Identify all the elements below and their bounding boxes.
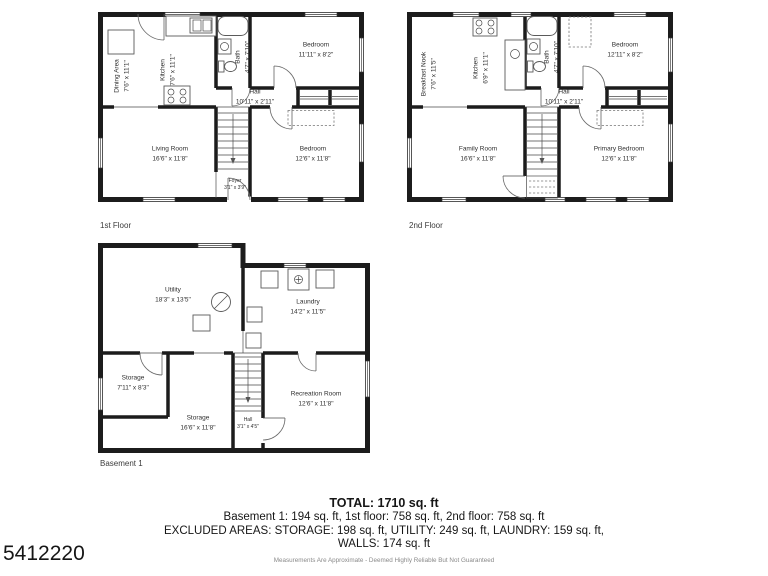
room-label-hall: Hall10'11" x 2'11" (236, 87, 274, 107)
staircase (218, 113, 248, 169)
room-label-hall: Hall10'11" x 2'11" (545, 87, 583, 107)
room-label-bedroom: Bedroom12'11" x 8'2" (607, 40, 642, 60)
dining-table-icon (108, 30, 134, 54)
caption-basement: Basement 1 (100, 459, 143, 468)
washer-icon (261, 271, 278, 288)
toilet-icon (219, 61, 225, 72)
room-label-bath: Bath4'7" x 7'10" (233, 41, 253, 73)
room-label-bath: Bath4'7" x 7'10" (542, 41, 562, 73)
room-label-recreation-room: Recreation Room12'6" x 11'8" (291, 389, 342, 409)
room-label-bedroom-2: Bedroom12'6" x 11'8" (295, 144, 330, 164)
bathtub-icon (218, 17, 248, 36)
utility-fixtures (193, 293, 231, 332)
room-label-dining-area: Dining Area7'6" x 11'1" (112, 59, 132, 93)
caption-2nd-floor: 2nd Floor (409, 221, 443, 230)
room-label-utility: Utility18'3" x 13'5" (155, 285, 191, 305)
equipment-box (246, 333, 261, 348)
equipment-box (247, 307, 262, 322)
room-label-bedroom-1: Bedroom11'11" x 8'2" (299, 40, 334, 60)
staircase (233, 357, 263, 411)
hall-closets (609, 90, 667, 105)
disclaimer-text: Measurements Are Approximate - Deemed Hi… (0, 557, 768, 564)
room-label-kitchen: Kitchen6'9" x 11'1" (471, 52, 491, 84)
kitchen-counter (166, 16, 216, 36)
listing-id-watermark: 5412220 (3, 542, 85, 566)
room-label-breakfast-nook: Breakfast Nook7'6" x 11'5" (419, 52, 439, 96)
walls-area-line: WALLS: 174 sq. ft (0, 538, 768, 552)
room-label-storage-2: Storage16'6" x 11'8" (180, 413, 215, 433)
area-summary: TOTAL: 1710 sq. ft Basement 1: 194 sq. f… (0, 496, 768, 564)
room-label-kitchen: Kitchen7'6" x 11'1" (158, 54, 178, 86)
floor-plan-basement-drawing (98, 243, 370, 453)
bath-sink-icon (218, 39, 231, 54)
room-label-storage-1: Storage7'11" x 8'3" (117, 373, 149, 393)
staircase (527, 113, 557, 169)
floor-plan-basement: Utility18'3" x 13'5" Laundry14'2" x 11'5… (98, 243, 370, 453)
dryer-icon (316, 270, 334, 288)
room-label-hall: Hall3'1" x 4'5" (237, 417, 259, 431)
wall-openings (140, 331, 263, 353)
room-label-family-room: Family Room16'6" x 11'8" (459, 144, 497, 164)
room-label-living-room: Living Room16'6" x 11'8" (152, 144, 188, 164)
excluded-areas-line: EXCLUDED AREAS: STORAGE: 198 sq. ft, UTI… (0, 525, 768, 539)
room-label-foyer: Foyer3'1" x 3'9" (224, 178, 246, 192)
floor-plan-1st-floor: Dining Area7'6" x 11'1" Kitchen7'6" x 11… (98, 12, 364, 202)
primary-closet (597, 111, 643, 126)
bedroom-closet (288, 111, 334, 126)
equipment-box (193, 315, 210, 331)
bedroom-closet (569, 17, 591, 47)
total-area-line: TOTAL: 1710 sq. ft (0, 496, 768, 510)
stair-closet (527, 176, 558, 198)
stove-icon (164, 86, 190, 105)
room-label-primary-bedroom: Primary Bedroom12'6" x 11'8" (594, 144, 645, 164)
floor-plan-2nd-floor: Breakfast Nook7'6" x 11'5" Kitchen6'9" x… (407, 12, 673, 202)
per-floor-area-line: Basement 1: 194 sq. ft, 1st floor: 758 s… (0, 511, 768, 525)
toilet-icon (528, 61, 534, 72)
hall-closets (300, 90, 358, 105)
room-label-laundry: Laundry14'2" x 11'5" (290, 297, 325, 317)
kitchen-counter (505, 40, 525, 90)
bathtub-icon (527, 17, 557, 36)
bath-sink-icon (527, 39, 540, 54)
caption-1st-floor: 1st Floor (100, 221, 131, 230)
